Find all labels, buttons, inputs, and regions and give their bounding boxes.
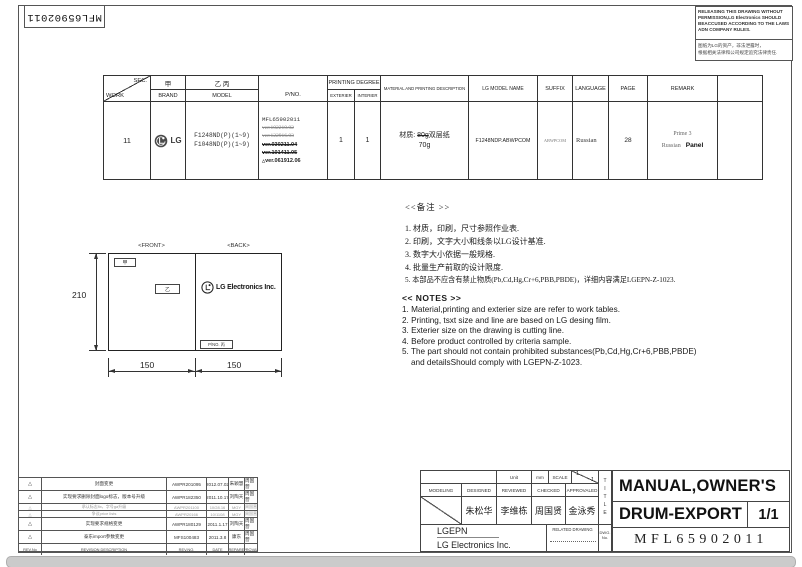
header-material: MATERIAL AND PRINTING DESCRIPTION	[380, 76, 468, 101]
header-language: LANGUAGE	[572, 76, 608, 101]
notes-en-item: 4. Before product controlled by criteria…	[402, 337, 780, 348]
revision-row: △ 泰东import参数变更 MFS100483 2011.3.8 康东 周国营	[19, 530, 257, 543]
material-old-weight: 80g	[417, 132, 429, 139]
pno-version-2: ver:122916.03	[262, 132, 294, 140]
doc-title-line2-row: DRUM-EXPORT 1/1	[613, 501, 789, 527]
cell-brand: LG	[150, 101, 185, 179]
cell-suffix: ABWPCOM	[537, 101, 572, 179]
header-suffix: SUFFIX	[537, 76, 572, 101]
cell-language: Russian	[572, 101, 608, 179]
doc-title-line1: MANUAL,OWNER'S	[613, 471, 789, 501]
title-vertical-label: TITLE	[599, 471, 611, 525]
cell-work: 11	[104, 101, 150, 179]
dotted-line	[550, 541, 596, 542]
company-short: LGEPN	[437, 526, 468, 536]
lg-logo-outline-icon	[201, 281, 214, 294]
notes-en-title: << NOTES >>	[402, 293, 780, 303]
unit-label: Unit	[496, 471, 531, 483]
company-full: LG Electronics Inc.	[437, 540, 511, 550]
pno-version-1: ver:102210.02	[262, 124, 294, 132]
arrow-left-icon	[196, 369, 202, 373]
unit-value: mm	[531, 471, 548, 483]
drawing-sheet: MFL65902011 RELEASING THIS DRAWING WITHO…	[0, 0, 802, 567]
cell-empty	[717, 101, 762, 179]
notes-cn-item: 5. 本部品不应含有禁止物质(Pb,Cd,Hg,Cr+6,PBB,PBDE)，详…	[405, 274, 785, 287]
header-brand-cn: 甲	[150, 76, 185, 89]
empty-cell	[421, 471, 496, 483]
arrow-right-icon	[188, 369, 194, 373]
notes-english: << NOTES >> 1. Material,printing and ext…	[402, 293, 780, 369]
signature-header-row: MODELING DESIGNED REVIEWED CHECKED APPRO…	[421, 483, 598, 496]
delta-revision-icon: △	[19, 478, 41, 490]
header-sec-work: SEC. WORK	[104, 76, 150, 101]
notes-en-item: 5. The part should not contain prohibite…	[402, 347, 780, 358]
arrow-left-icon	[109, 369, 115, 373]
notes-en-item: 1. Material,printing and exterier size a…	[402, 305, 780, 316]
panel-fold-line	[195, 254, 196, 350]
signature-name-row: 朱松华 李维栋 周国贤 金泳秀	[421, 496, 598, 524]
dim-tick	[281, 358, 282, 377]
sheet-number: 1/1	[747, 502, 789, 527]
warning-cn-line1: 图纸为LG的资产，非法泄露时，	[698, 42, 790, 49]
notes-cn-item: 3. 数字大小依据一般规格.	[405, 248, 785, 261]
approvaled-name: 金泳秀	[565, 497, 598, 524]
company-cell: LGEPN LG Electronics Inc.	[421, 525, 546, 551]
pno-current: MFL65902011	[262, 116, 300, 124]
material-weight: 70g	[419, 141, 431, 151]
dim-tick	[195, 358, 196, 377]
header-pno: P/NO.	[258, 76, 327, 101]
back-label: <BACK>	[195, 243, 282, 249]
related-drawing-cell: RELATED DRAWING	[546, 525, 598, 551]
model-2: F1048ND(P)(1~9)	[194, 141, 250, 150]
header-remark: REMARK	[647, 76, 717, 101]
height-dimension-line	[96, 253, 97, 351]
work-table: SEC. WORK 甲 BRAND 乙 丙 MODEL P/NO. PRINTI…	[103, 75, 763, 180]
remark-line1: Prime 3	[673, 129, 691, 140]
notes-en-item-continuation: and detailsShould comply with LGEPN-Z-10…	[402, 358, 780, 369]
back-panel-logo-text: LG Electronics Inc.	[216, 284, 276, 291]
dim-tick	[108, 358, 109, 377]
revision-row: △ 实现要求删除封面logo标志，版本号升级 AWPR182350 2011.1…	[19, 490, 257, 503]
revision-table: △ 封面变更 AWPR201095 2012.07.02 朱颖慧 周国营 △ 实…	[18, 477, 258, 552]
header-brand: BRAND	[150, 89, 185, 101]
release-warning-box: RELEASING THIS DRAWING WITHOUT PERMISSIO…	[695, 6, 793, 61]
title-block-signatures: Unit mm SCALE 1 1 MODELING DESIGNED REVI…	[420, 470, 598, 552]
lg-logo-icon	[154, 134, 168, 148]
revision-row: △ 争议price lists AWPR20166 10/1108 MGY 周国…	[19, 510, 257, 517]
dim-height-label: 210	[72, 290, 86, 300]
drawing-number: MFL65902011	[613, 527, 789, 551]
dwg-no-label: DWG. No.	[599, 525, 611, 551]
pno-version-3: ver.030211.04	[262, 141, 297, 149]
cell-pno-versions: MFL65902011 ver:102210.02 ver:122916.03 …	[258, 101, 327, 179]
header-page: PAGE	[608, 76, 647, 101]
unit-scale-row: Unit mm SCALE 1 1	[421, 471, 598, 483]
modeling-slash	[421, 497, 461, 524]
cell-models: F1248ND(P)(1~9) F1048ND(P)(1~9)	[185, 101, 258, 179]
checked-label: CHECKED	[531, 484, 565, 496]
notes-chinese: <<备注 >> 1. 材质，印刷，尺寸参照作业表. 2. 印刷，文字大小和线条以…	[405, 201, 785, 287]
pno-version-4: ver.101411.05	[262, 149, 297, 157]
warning-text-cn: 图纸为LG的资产，非法泄露时， 根据相关法律和公司规定追究法律责任.	[696, 40, 792, 58]
cell-lg-model-name: F1248NDP.ABWPCOM	[468, 101, 537, 179]
brand-text: LG	[170, 136, 181, 145]
title-block-title: MANUAL,OWNER'S DRUM-EXPORT 1/1 MFL659020…	[612, 470, 790, 552]
revision-row: △ 实现要求规格变更 AWPR180129 2011.1.17 刘陶天 周国营	[19, 517, 257, 530]
notes-cn-title: <<备注 >>	[405, 201, 785, 213]
dim-right-label: 150	[227, 360, 241, 370]
revision-row: △ 封面变更 AWPR201095 2012.07.02 朱颖慧 周国营	[19, 478, 257, 490]
title-block-strip: TITLE DWG. No.	[598, 470, 612, 552]
pno-marker-box: P/NO. 丙	[200, 340, 233, 349]
yi-marker-box: 乙	[155, 284, 180, 294]
reviewed-label: REVIEWED	[496, 484, 531, 496]
header-empty	[717, 76, 762, 101]
delta-revision-icon: △	[19, 531, 41, 543]
reviewed-name: 李维栋	[496, 497, 531, 524]
remark-line2: Russian Panel	[662, 140, 704, 152]
warning-cn-line2: 根据相关法律和公司规定追究法律责任.	[698, 49, 790, 56]
designed-label: DESIGNED	[461, 484, 496, 496]
notes-en-item: 2. Printing, tsxt size and line are base…	[402, 316, 780, 327]
cell-remark: Prime 3 Russian Panel	[647, 101, 717, 179]
front-label: <FRONT>	[108, 243, 195, 249]
pno-version-5: △ver.061912.06	[262, 157, 301, 165]
notes-cn-item: 2. 印刷，文字大小和线条以LG设计基准.	[405, 235, 785, 248]
header-work: WORK	[106, 93, 124, 99]
header-interier: INTERIER	[354, 89, 380, 101]
model-1: F1248ND(P)(1~9)	[194, 132, 250, 141]
dim-tick	[89, 350, 106, 351]
header-exterier: EXTERIER	[327, 89, 354, 101]
cell-exterier: 1	[327, 101, 354, 179]
designed-name: 朱松华	[461, 497, 496, 524]
cell-interier: 1	[354, 101, 380, 179]
panel-outline	[108, 253, 282, 351]
header-model: MODEL	[185, 89, 258, 101]
dim-tick	[89, 253, 106, 254]
warning-text-en: RELEASING THIS DRAWING WITHOUT PERMISSIO…	[696, 7, 792, 40]
header-printing-degree: PRINTING DEGREE	[327, 76, 380, 89]
cell-material: 材质: 80g双层纸 70g	[380, 101, 468, 179]
notes-en-item: 3. Exterier size on the drawing is cutti…	[402, 326, 780, 337]
corner-part-number-text: MFL65902011	[27, 11, 102, 23]
scale-label: SCALE	[548, 471, 571, 483]
modeling-label: MODELING	[421, 484, 461, 496]
scale-value: 1 1	[571, 471, 598, 483]
material-line1: 材质: 80g双层纸	[399, 131, 450, 141]
corner-part-number: MFL65902011	[24, 5, 105, 28]
divider	[437, 537, 499, 538]
bottom-window-bar	[6, 556, 796, 567]
dim-left-label: 150	[140, 360, 154, 370]
company-row: LGEPN LG Electronics Inc. RELATED DRAWIN…	[421, 524, 598, 551]
arrow-right-icon	[275, 369, 281, 373]
delta-revision-icon: △	[19, 491, 41, 503]
doc-title-line2: DRUM-EXPORT	[613, 505, 747, 524]
cell-page: 28	[608, 101, 647, 179]
notes-cn-item: 1. 材质，印刷，尺寸参照作业表.	[405, 222, 785, 235]
checked-name: 周国贤	[531, 497, 565, 524]
notes-cn-item: 4. 批量生产前取的设计限度.	[405, 261, 785, 274]
header-lg-model-name: LG MODEL NAME	[468, 76, 537, 101]
approvaled-label: APPROVALED	[565, 484, 598, 496]
back-panel-logo: LG Electronics Inc.	[201, 281, 276, 294]
header-sec: SEC.	[133, 78, 147, 84]
header-model-cn: 乙 丙	[185, 76, 258, 89]
jia-marker-box: 甲	[114, 258, 136, 267]
delta-revision-icon: △	[19, 518, 41, 530]
revision-row: △ 承认标志fix，字号ga升级 AWPR201100 10/28.16 MGY…	[19, 503, 257, 510]
revision-header-row: REV.No REVISION DESCRIPTION REV.NO. DATE…	[19, 543, 257, 555]
